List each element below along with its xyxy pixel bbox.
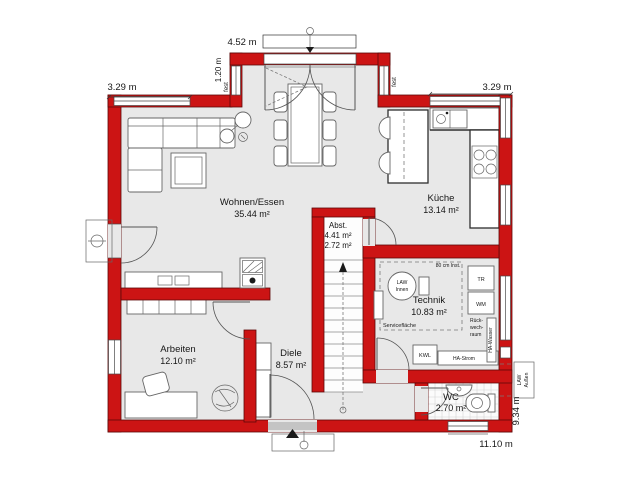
- room-area-hall: 8.57 m²: [276, 360, 307, 370]
- toilet: [466, 394, 495, 412]
- room-area-wc: 2.70 m²: [436, 403, 467, 413]
- back-label-1: Rück-: [470, 318, 483, 324]
- wall-stair-left: [312, 217, 324, 392]
- inst-label: 80 cm Inst.: [436, 263, 460, 269]
- window-bay-left-fixed: [232, 66, 241, 95]
- law-inner-label-1: LAW: [397, 280, 408, 286]
- wall-technik-top: [363, 245, 499, 258]
- kitchen-counter-right: [470, 130, 499, 228]
- floorplan-canvas: LAW Innen 80 cm Inst. TR WM Rück- wech- …: [0, 0, 640, 480]
- kwl-box: KWL: [413, 345, 437, 364]
- wall-office-hall: [244, 330, 256, 422]
- dim-top-center: 4.52 m: [227, 37, 256, 48]
- law-outside-label-2: Außen: [524, 372, 530, 387]
- bay-downspout-symbol: [263, 28, 356, 54]
- window-east-small: [501, 347, 511, 358]
- room-label-technik: Technik: [413, 295, 445, 306]
- wall-living-office: [121, 288, 270, 300]
- washer-box: WM: [468, 292, 494, 314]
- fixed-glazing-right: fest: [392, 77, 398, 87]
- dryer-box: TR: [468, 266, 494, 290]
- room-area-storage: 4.41 m²: [324, 231, 351, 240]
- desk: [125, 392, 197, 418]
- window-east-2: [501, 185, 511, 225]
- washer-label: WM: [476, 302, 486, 308]
- window-east-3: [501, 276, 511, 340]
- floorplan-svg: LAW Innen 80 cm Inst. TR WM Rück- wech- …: [0, 0, 640, 480]
- tv-sideboard: [125, 272, 222, 289]
- room-label-kitchen: Küche: [428, 193, 455, 204]
- back-label-3: raum: [470, 332, 481, 338]
- window-east-1: [501, 98, 511, 138]
- dim-bottom: 11.10 m: [479, 439, 513, 450]
- room-area-kitchen: 13.14 m²: [423, 205, 459, 215]
- room-area-living: 35.44 m²: [234, 209, 270, 219]
- kwl-label: KWL: [419, 353, 431, 359]
- window-west: [109, 340, 121, 374]
- window-bay-right-fixed: [380, 66, 389, 95]
- ha-wasser-label: HA-Wasser: [488, 327, 494, 353]
- back-label-2: wech-: [470, 325, 484, 331]
- dining-table: [288, 84, 322, 166]
- kitchen-peninsula: [388, 110, 428, 183]
- room-label-living: Wohnen/Essen: [220, 197, 284, 208]
- room-label-storage: Abst.: [329, 221, 347, 230]
- room-label-office: Arbeiten: [160, 344, 195, 355]
- room-label-hall: Diele: [280, 348, 302, 359]
- room-label-wc: WC: [443, 392, 459, 403]
- dryer-label: TR: [477, 277, 484, 283]
- battery-unit-box: [374, 291, 383, 319]
- wardrobe: [256, 343, 271, 417]
- service-area-label: Servicefläche: [383, 323, 416, 329]
- law-inner-label-2: Innen: [396, 287, 409, 293]
- fixed-glazing-left: fest: [224, 82, 230, 92]
- window-north-left: [114, 97, 190, 106]
- law-outside-label-1: LAW: [517, 374, 523, 385]
- wall-west: [108, 95, 121, 432]
- ha-wasser-unit: HA-Wasser: [487, 318, 496, 362]
- coffee-table: [171, 153, 206, 188]
- wall-storage-top: [312, 208, 375, 217]
- room-area-office: 12.10 m²: [160, 356, 196, 366]
- kitchen-counter-top: [430, 108, 499, 130]
- dim-top-left: 3.29 m: [107, 82, 136, 93]
- chimney: [240, 258, 265, 288]
- ha-strom-label: HA-Strom: [453, 356, 475, 362]
- dim-top-right: 3.29 m: [482, 82, 511, 93]
- room-area-technik: 10.83 m²: [411, 307, 447, 317]
- dim-right: 9.34 m: [511, 396, 522, 425]
- window-north-right: [430, 97, 500, 106]
- room-area2-storage: 2.72 m²: [324, 241, 351, 250]
- dim-bay-depth: 1.20 m: [214, 57, 223, 82]
